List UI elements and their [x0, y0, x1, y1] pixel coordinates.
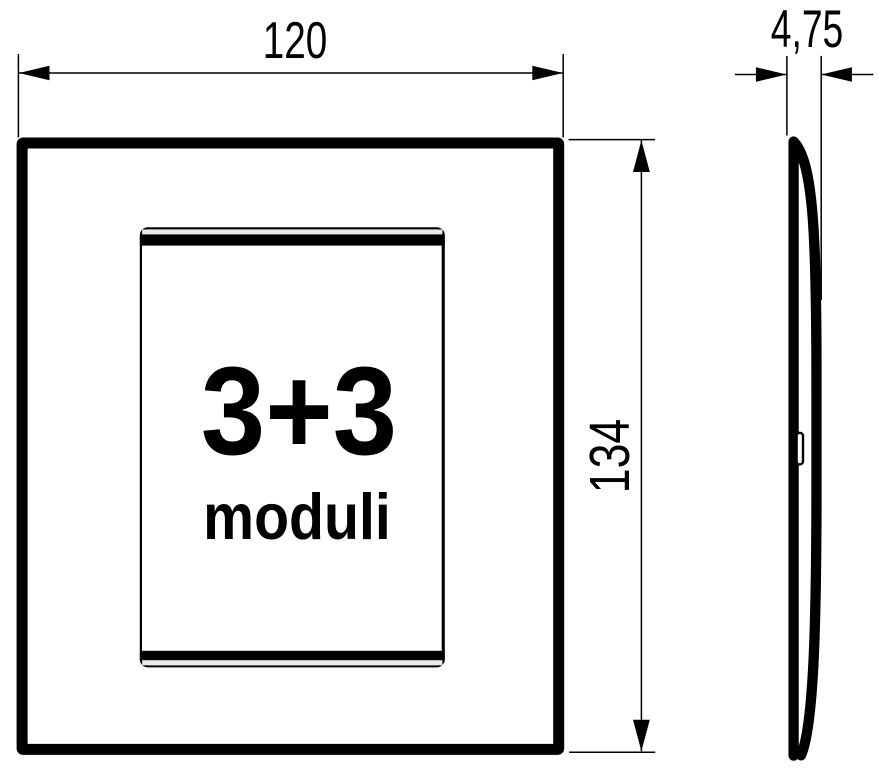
svg-text:134: 134	[578, 419, 641, 493]
svg-text:4,75: 4,75	[771, 0, 844, 59]
svg-text:120: 120	[263, 10, 328, 69]
svg-text:3+3: 3+3	[201, 341, 397, 482]
svg-text:moduli: moduli	[203, 481, 391, 553]
